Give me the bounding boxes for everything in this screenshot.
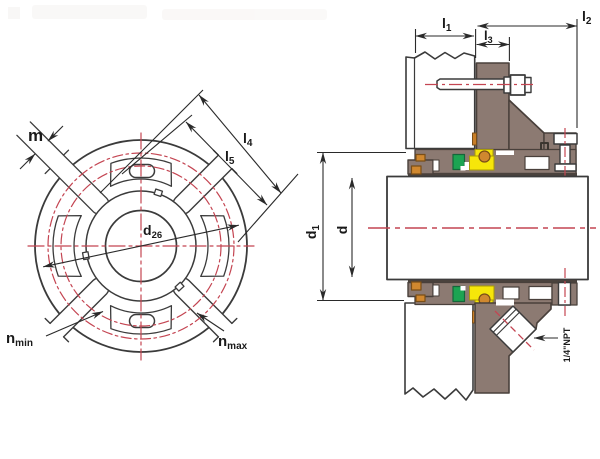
svg-text:m: m	[28, 126, 43, 145]
svg-text:d: d	[334, 226, 350, 235]
svg-text:1/4"NPT: 1/4"NPT	[562, 327, 572, 362]
